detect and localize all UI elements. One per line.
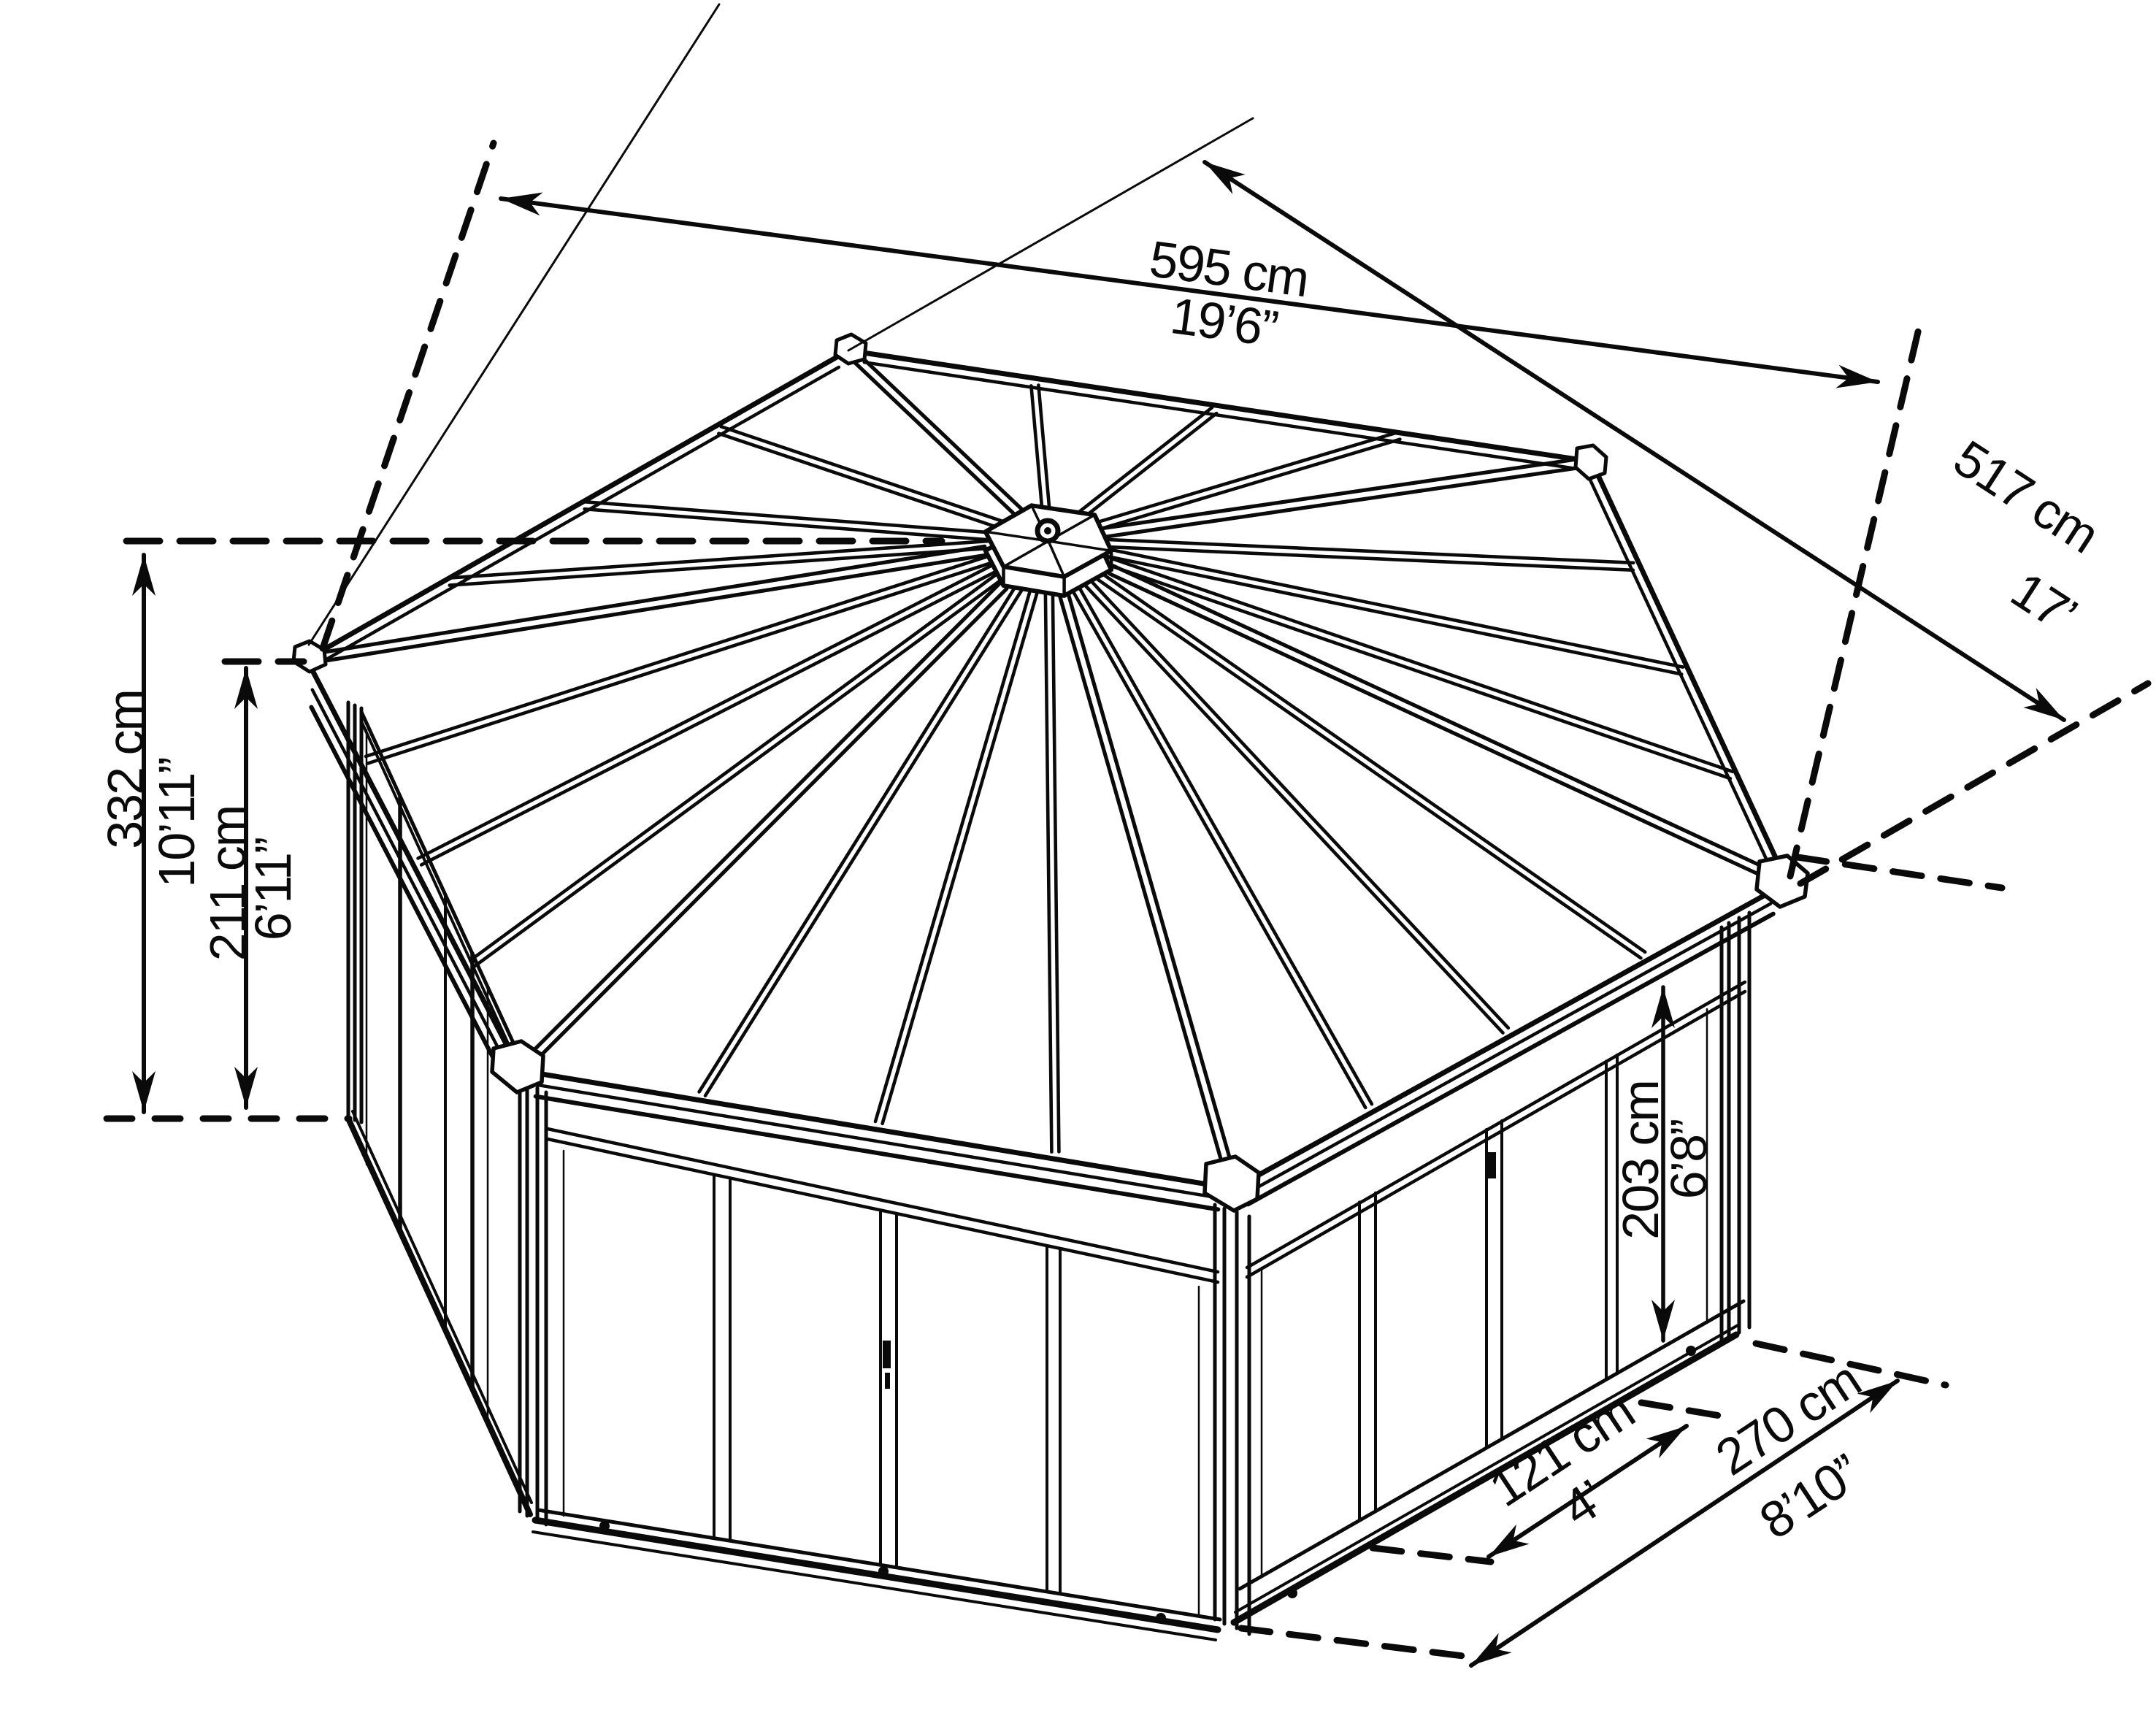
svg-text:332 cm: 332 cm [97,690,154,849]
svg-text:6’11”: 6’11” [245,838,302,940]
svg-text:10’11”: 10’11” [148,758,205,887]
svg-text:6’8”: 6’8” [1660,1120,1717,1200]
